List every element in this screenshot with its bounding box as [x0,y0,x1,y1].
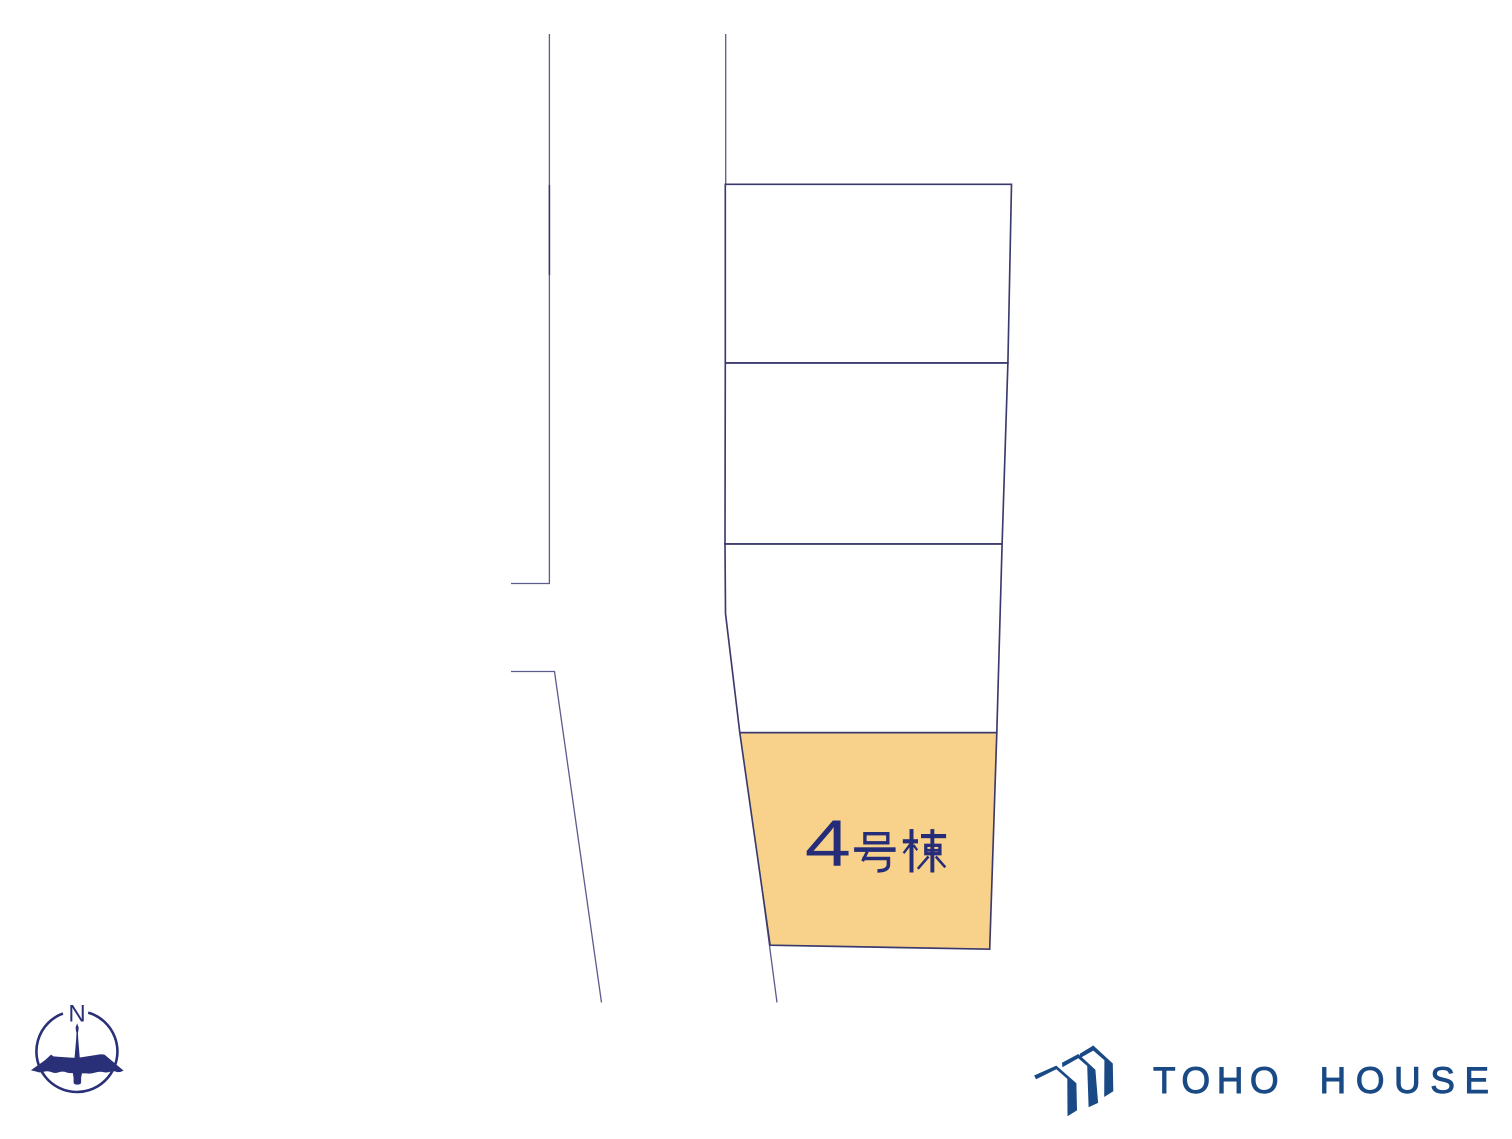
svg-text:4: 4 [805,806,851,880]
svg-text:HOUSE: HOUSE [1320,1060,1499,1101]
svg-text:TOHO: TOHO [1153,1060,1285,1101]
svg-text:N: N [68,1001,85,1028]
